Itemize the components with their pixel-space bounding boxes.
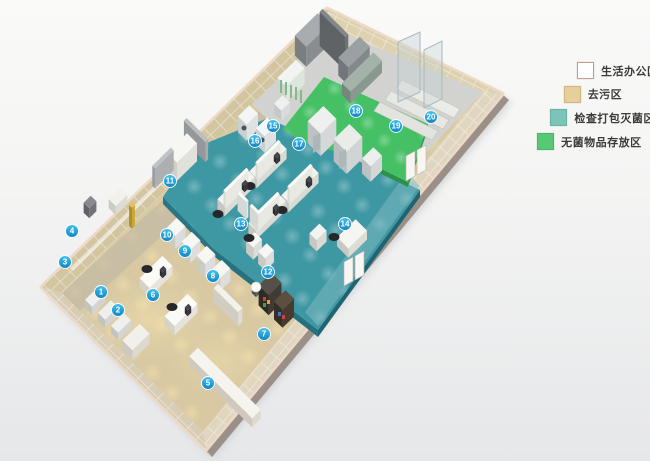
location-marker-6[interactable]: 6 [147, 289, 160, 302]
svg-text:13: 13 [237, 220, 246, 229]
location-marker-5[interactable]: 5 [202, 377, 215, 390]
location-marker-12[interactable]: 12 [262, 266, 275, 279]
location-marker-14[interactable]: 14 [339, 218, 352, 231]
location-marker-9[interactable]: 9 [179, 245, 192, 258]
svg-text:18: 18 [352, 107, 361, 116]
floorplan-canvas: 1234567891011121314151617181920 [0, 0, 650, 461]
svg-text:20: 20 [427, 113, 436, 122]
location-marker-17[interactable]: 17 [293, 138, 306, 151]
svg-text:6: 6 [151, 291, 156, 300]
location-marker-18[interactable]: 18 [350, 105, 363, 118]
location-marker-16[interactable]: 16 [249, 135, 262, 148]
svg-text:8: 8 [211, 272, 216, 281]
svg-text:2: 2 [116, 306, 121, 315]
svg-text:10: 10 [163, 231, 172, 240]
svg-text:11: 11 [166, 177, 175, 186]
location-marker-15[interactable]: 15 [267, 120, 280, 133]
location-marker-10[interactable]: 10 [161, 229, 174, 242]
svg-text:12: 12 [264, 268, 273, 277]
svg-text:9: 9 [183, 247, 188, 256]
location-marker-4[interactable]: 4 [66, 225, 79, 238]
svg-text:19: 19 [392, 122, 401, 131]
location-marker-8[interactable]: 8 [207, 270, 220, 283]
svg-text:15: 15 [269, 122, 278, 131]
svg-text:4: 4 [70, 227, 75, 236]
location-marker-11[interactable]: 11 [164, 175, 177, 188]
svg-text:3: 3 [63, 258, 68, 267]
location-marker-20[interactable]: 20 [425, 111, 438, 124]
location-marker-7[interactable]: 7 [258, 328, 271, 341]
svg-text:5: 5 [206, 379, 211, 388]
svg-text:7: 7 [262, 330, 267, 339]
svg-text:17: 17 [295, 140, 304, 149]
facility-3d-floorplan: 1234567891011121314151617181920 生活办公区去污区… [0, 0, 650, 461]
svg-text:16: 16 [251, 137, 260, 146]
location-marker-2[interactable]: 2 [112, 304, 125, 317]
location-marker-13[interactable]: 13 [235, 218, 248, 231]
svg-text:1: 1 [99, 288, 104, 297]
svg-text:14: 14 [341, 220, 350, 229]
location-marker-1[interactable]: 1 [95, 286, 108, 299]
location-marker-3[interactable]: 3 [59, 256, 72, 269]
location-marker-19[interactable]: 19 [390, 120, 403, 133]
